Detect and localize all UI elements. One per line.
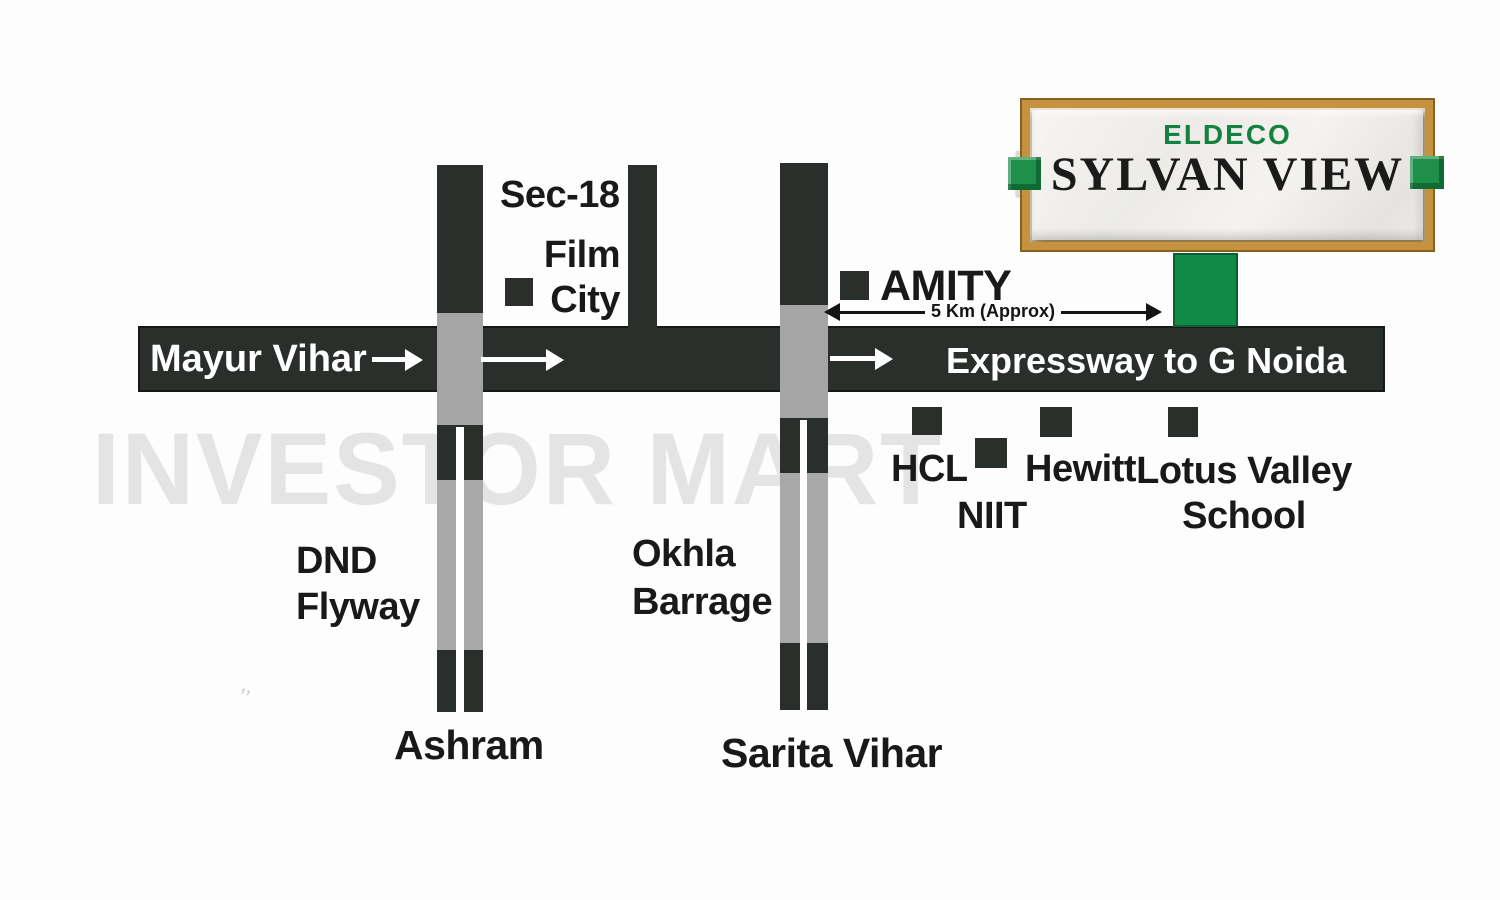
mayur-vihar-label: Mayur Vihar: [150, 340, 367, 378]
amity-label: AMITY: [880, 261, 1011, 312]
okhla-road: [780, 163, 828, 710]
okhla-barrage-label: Okhla Barrage: [632, 531, 772, 627]
scan-artifact: ,‚: [238, 671, 256, 699]
film-city-road: [628, 165, 657, 330]
brand-name: ELDECO: [1030, 121, 1425, 149]
arrow-left-icon: [824, 303, 840, 321]
intersection-gray-a: [437, 313, 483, 425]
amity-marker: [840, 271, 869, 300]
road-arrow-icon-2: [830, 356, 876, 361]
expressway-label: Expressway to G Noida: [946, 343, 1346, 379]
project-name: SYLVAN VIEW: [1030, 151, 1425, 199]
dnd-flyway-label: DND Flyway: [296, 538, 420, 631]
hewitt-marker: [1040, 407, 1072, 437]
sarita-vihar-label: Sarita Vihar: [721, 729, 942, 777]
road-arrow-icon-1: [481, 357, 547, 362]
arrow-right-icon: [1146, 303, 1162, 321]
mayur-vihar-arrow-icon: [372, 357, 406, 362]
intersection-gray-c: [780, 305, 828, 418]
sec18-label: Sec-18: [500, 173, 620, 218]
ashram-label: Ashram: [394, 721, 544, 769]
location-map: INVESTOR MART ,‚ Mayur Vihar Expressway …: [0, 0, 1500, 900]
lotus-valley-marker: [1168, 407, 1198, 437]
film-city-label: Film City: [505, 233, 620, 323]
dnd-flyway-road: [437, 165, 483, 712]
niit-label: NIIT: [957, 494, 1027, 539]
board-tab-right: [1410, 156, 1444, 189]
niit-marker: [975, 438, 1007, 468]
lotus-valley-label: Lotus Valley School: [1136, 449, 1352, 539]
board-tab-left: [1008, 157, 1041, 190]
logo-board: ELDECO SYLVAN VIEW: [1022, 100, 1433, 250]
hcl-marker: [912, 407, 942, 435]
lane-divider-c: [800, 420, 807, 710]
lane-divider-a: [456, 427, 464, 712]
site-marker: [1173, 253, 1238, 327]
hewitt-label: Hewitt: [1025, 447, 1136, 492]
hcl-label: HCL: [891, 447, 968, 492]
